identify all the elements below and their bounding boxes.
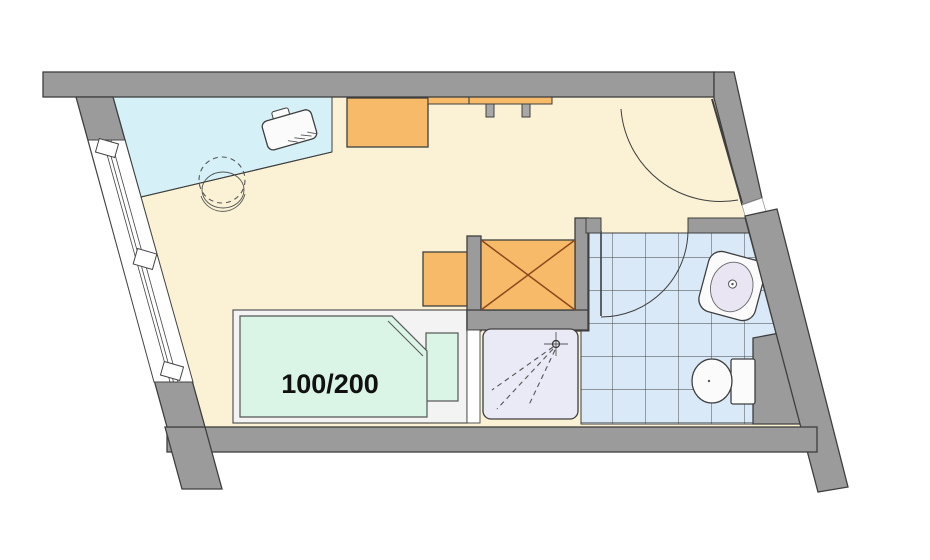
shower-partition bbox=[467, 330, 480, 423]
floor-plan: 100/200 bbox=[0, 0, 930, 560]
bed-size-label: 100/200 bbox=[281, 369, 379, 399]
bed-pillow bbox=[426, 333, 458, 401]
bed: 100/200 bbox=[233, 310, 467, 423]
niche-bottom-wall bbox=[467, 310, 588, 330]
shower-tray bbox=[483, 329, 578, 419]
shelf-leg bbox=[486, 104, 494, 117]
bathroom-wall-left-segment bbox=[586, 218, 601, 233]
top-wall bbox=[43, 72, 714, 97]
cabinet bbox=[347, 98, 428, 147]
shelf-leg bbox=[522, 104, 530, 117]
side-table bbox=[423, 252, 468, 306]
toilet-bowl bbox=[692, 359, 732, 403]
bottom-wall bbox=[167, 427, 817, 452]
bed-mattress bbox=[240, 316, 427, 417]
toilet bbox=[692, 359, 755, 404]
bathroom-wall-right-segment bbox=[688, 218, 749, 233]
shower bbox=[467, 329, 578, 423]
toilet-tank bbox=[731, 359, 755, 404]
